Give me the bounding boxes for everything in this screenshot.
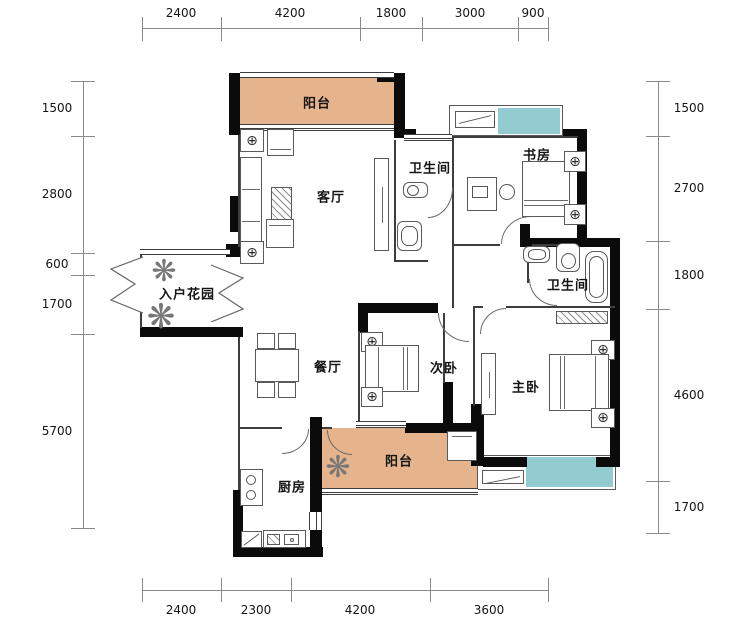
side-table-lamp-icon: ⊕ — [564, 151, 586, 172]
dim-label-left-2: 2800 — [42, 187, 73, 201]
door-arc-study — [501, 216, 531, 244]
dim-label-left-4: 1700 — [42, 297, 73, 311]
dim-line-top — [142, 28, 548, 29]
dining-chair — [257, 382, 275, 398]
dim-tick — [142, 17, 143, 41]
dim-tick — [221, 17, 222, 41]
dim-tick — [71, 528, 95, 529]
dim-tick — [518, 17, 519, 41]
wall-thin — [506, 306, 615, 308]
wall — [483, 457, 527, 467]
bay-window-bottom-cabinet — [482, 470, 524, 484]
bay-window-top-glass — [498, 108, 560, 134]
wall — [443, 382, 453, 433]
dim-label-left-5: 5700 — [42, 424, 73, 438]
dining-chair — [278, 333, 296, 349]
dim-tick — [548, 17, 549, 41]
dim-tick — [646, 533, 670, 534]
window — [309, 512, 322, 530]
entry-break-mark — [108, 256, 144, 314]
side-table-lamp-icon: ⊕ — [240, 241, 264, 264]
kitchen-corner-counter — [241, 531, 262, 548]
stove — [240, 469, 263, 506]
wall-thin — [394, 140, 396, 262]
wall-thin — [238, 337, 240, 490]
wardrobe — [556, 311, 608, 324]
dim-label-bottom-3: 4200 — [345, 603, 376, 617]
dim-tick — [360, 17, 361, 41]
window — [356, 421, 406, 428]
dim-tick — [646, 136, 670, 137]
side-table-lamp-icon: ⊕ — [591, 408, 615, 428]
dim-tick — [71, 334, 95, 335]
dining-table — [255, 349, 299, 382]
wall-thin — [452, 244, 500, 246]
dim-line-right — [658, 81, 659, 533]
dim-tick — [646, 309, 670, 310]
dim-label-bottom-2: 2300 — [241, 603, 272, 617]
study-bed — [522, 161, 570, 217]
entry-break-mark — [210, 264, 246, 322]
dim-tick — [422, 17, 423, 41]
wall — [596, 457, 620, 467]
tv-cabinet — [481, 353, 496, 415]
dim-tick — [71, 275, 95, 276]
dim-label-top-2: 4200 — [275, 6, 306, 20]
wall — [310, 417, 322, 514]
dim-line-bottom — [142, 590, 548, 591]
wall-thin — [322, 427, 332, 429]
armchair — [266, 219, 294, 248]
door-arc-bathroom1 — [428, 188, 453, 218]
window — [240, 72, 394, 78]
washing-machine — [447, 431, 477, 461]
wall — [394, 73, 405, 135]
toilet — [556, 243, 580, 272]
toilet — [403, 182, 428, 198]
wall-thin — [452, 138, 454, 308]
side-table-lamp-icon: ⊕ — [564, 204, 586, 225]
room-label-living-room: 客厅 — [317, 187, 345, 206]
door-arc-kitchen — [282, 429, 309, 454]
dim-tick — [430, 578, 431, 602]
wall-thin — [140, 312, 142, 328]
wall-thin — [240, 427, 282, 429]
dim-label-right-5: 1700 — [674, 500, 705, 514]
room-label-dining-room: 餐厅 — [314, 357, 342, 376]
window — [322, 488, 478, 495]
window — [404, 134, 452, 141]
plant-icon: ❋ — [151, 257, 176, 287]
dining-chair — [278, 382, 296, 398]
dim-label-top-3: 1800 — [376, 6, 407, 20]
dim-tick — [646, 241, 670, 242]
dim-label-left-3: 600 — [46, 257, 69, 271]
wall-thin — [394, 260, 428, 262]
dim-tick — [71, 253, 95, 254]
room-label-bathroom-2: 卫生间 — [547, 275, 589, 294]
wall — [358, 303, 438, 313]
room-label-balcony-top: 阳台 — [303, 93, 331, 112]
dim-label-top-5: 900 — [522, 6, 545, 20]
bed-bedroom2 — [365, 345, 419, 392]
dim-label-top-4: 3000 — [455, 6, 486, 20]
room-label-bedroom-2: 次卧 — [430, 358, 458, 377]
room-label-entry-garden: 入户花园 — [159, 284, 215, 303]
dim-tick — [646, 81, 670, 82]
tv-cabinet — [374, 158, 389, 251]
sofa — [240, 157, 262, 253]
wall — [358, 303, 368, 333]
dim-label-right-3: 1800 — [674, 268, 705, 282]
wall-thin — [473, 306, 475, 406]
coffee-table — [271, 187, 292, 222]
door-arc-master — [480, 308, 506, 334]
dim-tick — [548, 578, 549, 602]
side-table-lamp-icon: ⊕ — [361, 387, 383, 407]
floor-plan: 2400 4200 1800 3000 900 2400 2300 4200 3… — [0, 0, 740, 627]
dim-tick — [71, 136, 95, 137]
dim-label-right-4: 4600 — [674, 388, 705, 402]
plant-icon: ❋ — [147, 300, 176, 334]
dim-label-right-2: 2700 — [674, 181, 705, 195]
dim-tick — [142, 578, 143, 602]
kitchen-sink-counter — [263, 530, 306, 548]
wall-thin — [452, 136, 578, 138]
dim-tick — [71, 81, 95, 82]
room-label-study: 书房 — [523, 145, 551, 164]
dim-tick — [646, 481, 670, 482]
sink — [523, 246, 550, 263]
dim-label-top-1: 2400 — [166, 6, 197, 20]
dining-chair — [257, 333, 275, 349]
sink — [397, 221, 422, 251]
bay-window-top-cabinet — [455, 111, 495, 128]
desk-chair — [499, 184, 515, 200]
dim-label-left-1: 1500 — [42, 101, 73, 115]
room-label-kitchen: 厨房 — [278, 477, 306, 496]
dim-label-bottom-1: 2400 — [166, 603, 197, 617]
dim-label-bottom-4: 3600 — [474, 603, 505, 617]
armchair — [267, 129, 294, 156]
desk — [467, 177, 497, 211]
plant-icon: ❋ — [325, 453, 350, 483]
wall-thin — [358, 331, 360, 423]
dim-label-right-1: 1500 — [674, 101, 705, 115]
room-label-master-bedroom: 主卧 — [512, 377, 540, 396]
room-label-bathroom-1: 卫生间 — [409, 158, 451, 177]
dim-tick — [221, 578, 222, 602]
wall — [229, 73, 240, 135]
room-label-balcony-bottom: 阳台 — [385, 451, 413, 470]
dim-tick — [291, 578, 292, 602]
bed-master — [549, 354, 609, 411]
dim-line-left — [83, 81, 84, 528]
side-table-lamp-icon: ⊕ — [240, 129, 264, 152]
